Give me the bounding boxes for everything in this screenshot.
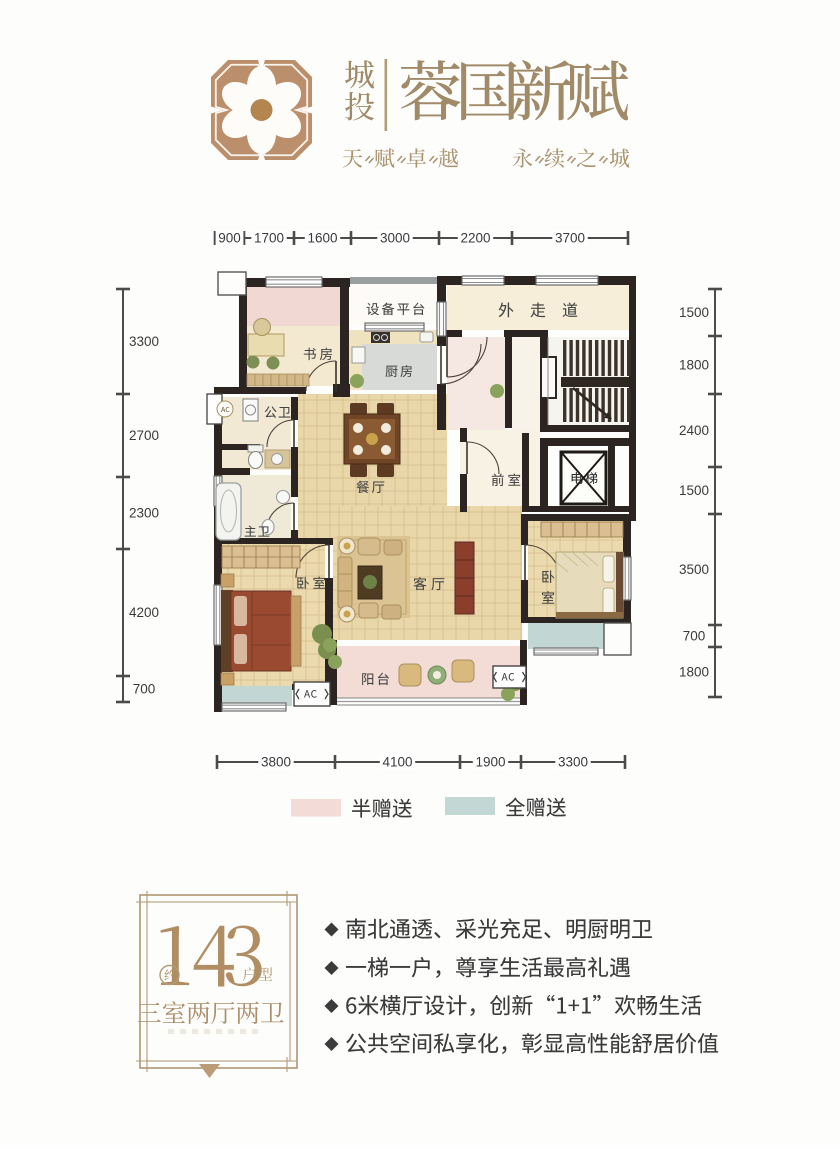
svg-text:1800: 1800 <box>679 665 709 680</box>
svg-text:3300: 3300 <box>129 334 159 349</box>
svg-text:3700: 3700 <box>555 231 585 246</box>
svg-text:3500: 3500 <box>679 562 709 577</box>
svg-text:2400: 2400 <box>679 423 709 438</box>
svg-text:3300: 3300 <box>558 755 588 770</box>
svg-text:700: 700 <box>133 682 156 697</box>
svg-text:2200: 2200 <box>460 231 490 246</box>
svg-text:2300: 2300 <box>129 506 159 521</box>
svg-text:1800: 1800 <box>679 358 709 373</box>
svg-text:4200: 4200 <box>129 605 159 620</box>
svg-text:1500: 1500 <box>679 483 709 498</box>
svg-text:700: 700 <box>683 629 706 644</box>
svg-text:1600: 1600 <box>307 231 337 246</box>
svg-text:900: 900 <box>218 231 241 246</box>
svg-text:4100: 4100 <box>382 755 412 770</box>
svg-text:3000: 3000 <box>380 231 410 246</box>
svg-text:3800: 3800 <box>261 755 291 770</box>
svg-text:1700: 1700 <box>254 231 284 246</box>
svg-text:1900: 1900 <box>475 755 505 770</box>
svg-text:1500: 1500 <box>679 305 709 320</box>
svg-text:2700: 2700 <box>129 428 159 443</box>
